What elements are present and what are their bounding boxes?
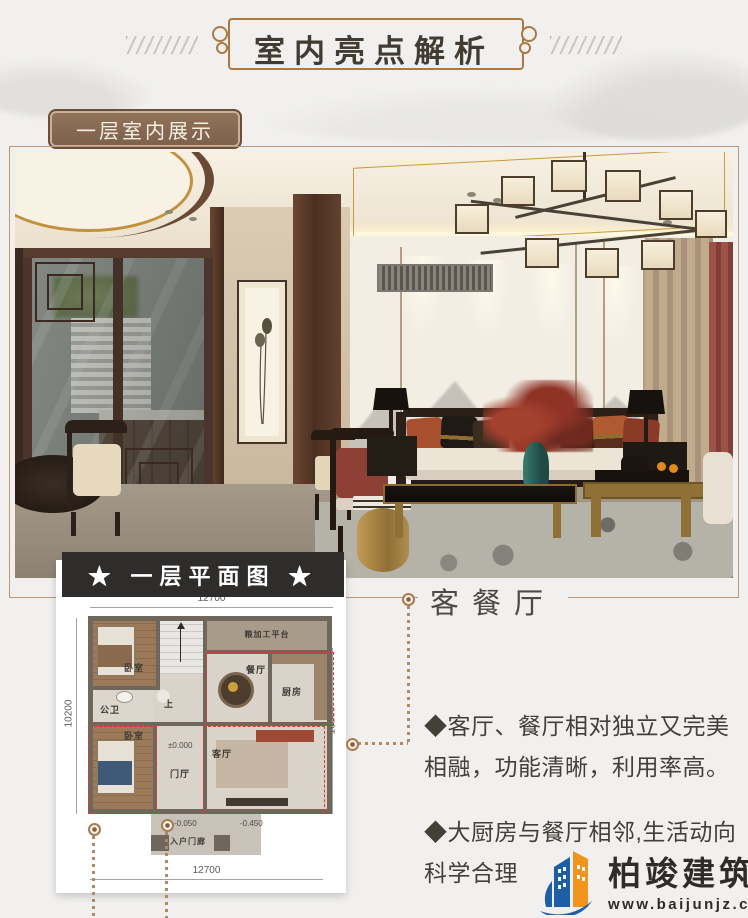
chandelier-lamp <box>525 238 559 268</box>
table-leg <box>591 497 601 537</box>
room-label-kitchen: 厨房 <box>282 688 302 697</box>
highlight-living <box>203 726 325 812</box>
wall <box>88 686 160 690</box>
stairs-arrow-head <box>177 622 185 629</box>
table-leg <box>681 497 691 537</box>
highlight-bedroom <box>89 726 157 814</box>
floor-plan-card: 12700 10200 10800 12700 <box>56 560 346 893</box>
chandelier-lamp <box>605 170 641 202</box>
dim-left: 10200 <box>63 700 74 728</box>
dim-bottom: 12700 <box>90 865 323 876</box>
elevation-foyer: ±0.000 <box>168 742 192 750</box>
chandelier-lamp <box>695 210 727 238</box>
room-label-foyer: 门厅 <box>170 770 190 779</box>
company-name: 柏竣建筑 <box>608 847 748 895</box>
coffee-table-glass <box>383 484 573 538</box>
table-lamp-stem <box>389 410 393 436</box>
leader-marker <box>88 823 101 836</box>
porch-pillar <box>214 835 230 851</box>
table-leg <box>395 504 403 538</box>
poster-canvas: 室内亮点解析 一层室内展示 <box>0 0 748 918</box>
table-lamp <box>627 390 665 414</box>
coffee-table-gold <box>583 480 701 538</box>
leader-marker <box>402 593 415 606</box>
company-website: www.baijunjz.com <box>608 896 748 913</box>
chandelier-lamp <box>641 240 675 270</box>
table-leg <box>553 504 561 538</box>
header-scroll-left-icon <box>216 42 228 54</box>
header-scroll-right-icon <box>521 26 537 42</box>
chaise-cushion <box>703 452 733 524</box>
header-scroll-left-icon <box>212 26 228 42</box>
header-left-slashes <box>126 36 198 54</box>
elevation-porch: -0.050 <box>174 820 197 828</box>
room-label-stairs: 上 <box>164 700 174 709</box>
dim-line-bottom <box>90 879 323 880</box>
room-label-dining: 餐厅 <box>246 666 266 675</box>
mountain-watermark <box>250 88 730 143</box>
header-scroll-right-icon <box>519 42 531 54</box>
table-top <box>383 484 577 504</box>
header-right-slashes <box>550 36 622 54</box>
downlight <box>165 210 173 214</box>
leader-dotted-line <box>358 742 408 745</box>
armchair-leg <box>338 526 343 552</box>
company-logo: 柏竣建筑 www.baijunjz.com <box>540 842 748 918</box>
wall <box>88 616 332 621</box>
wall-scroll-panel <box>237 280 287 444</box>
chandelier-lamp <box>501 176 535 206</box>
elevation-ground: -0.450 <box>240 820 263 828</box>
floor-plan-drawing: 12700 10200 10800 12700 <box>56 560 346 893</box>
page-title: 室内亮点解析 <box>228 26 520 71</box>
side-table <box>367 436 417 476</box>
orange-fruit <box>669 464 678 473</box>
chair-leg <box>315 494 319 520</box>
room-label-bath: 公卫 <box>100 706 120 715</box>
room-label-bedroom-top: 卧室 <box>124 664 144 673</box>
door-lattice <box>47 274 83 310</box>
chandelier-lamp <box>551 160 587 192</box>
chair-leg <box>115 512 120 536</box>
chair-cushion <box>73 444 121 496</box>
leader-dotted-line <box>92 836 95 918</box>
plan-banner-label: ★ 一层平面图 ★ <box>88 559 317 591</box>
chair-post <box>67 430 72 510</box>
highlight-dining-kitchen <box>206 652 334 726</box>
leader-marker <box>346 738 359 751</box>
door-rail <box>23 248 213 258</box>
stairs-arrow <box>180 626 181 662</box>
chair-leg <box>71 512 76 536</box>
dining-chair <box>57 420 133 538</box>
chandelier-arm <box>515 176 676 219</box>
plan-banner: ★ 一层平面图 ★ <box>62 552 344 597</box>
room-label-platform: 粮加工平台 <box>222 631 312 639</box>
dim-line-top <box>90 607 333 608</box>
room-label-living: 客厅 <box>212 750 232 759</box>
chandelier-lamp <box>455 204 489 234</box>
orange-fruit <box>657 462 666 471</box>
lotus-art <box>239 284 285 440</box>
section-badge-label: 一层室内展示 <box>76 115 214 144</box>
table-lamp-stem <box>644 414 648 442</box>
leader-marker <box>161 819 174 832</box>
callout-bullet-1: ◆客厅、餐厅相对独立又完美相融，功能清晰，利用率高。 <box>424 706 746 788</box>
leader-dotted-line <box>165 832 168 918</box>
toilet <box>116 691 133 703</box>
chandelier-lamp <box>659 190 693 220</box>
section-badge: 一层室内展示 <box>48 109 242 149</box>
teapot <box>621 456 649 472</box>
leader-dotted-line <box>407 606 410 744</box>
wall <box>156 616 160 690</box>
table-lamp <box>373 388 409 410</box>
interior-photo <box>15 152 733 578</box>
callout-title: 客餐厅 <box>418 580 568 622</box>
chair-backrest <box>65 420 127 433</box>
chandelier-lamp <box>585 248 619 278</box>
room-label-bedroom-bottom: 卧室 <box>124 732 144 741</box>
dim-line-left <box>76 618 77 814</box>
logo-mark-icon <box>540 845 602 915</box>
room-label-porch: 入户门廊 <box>170 838 206 846</box>
chandelier <box>455 152 730 317</box>
downlight <box>189 217 197 221</box>
